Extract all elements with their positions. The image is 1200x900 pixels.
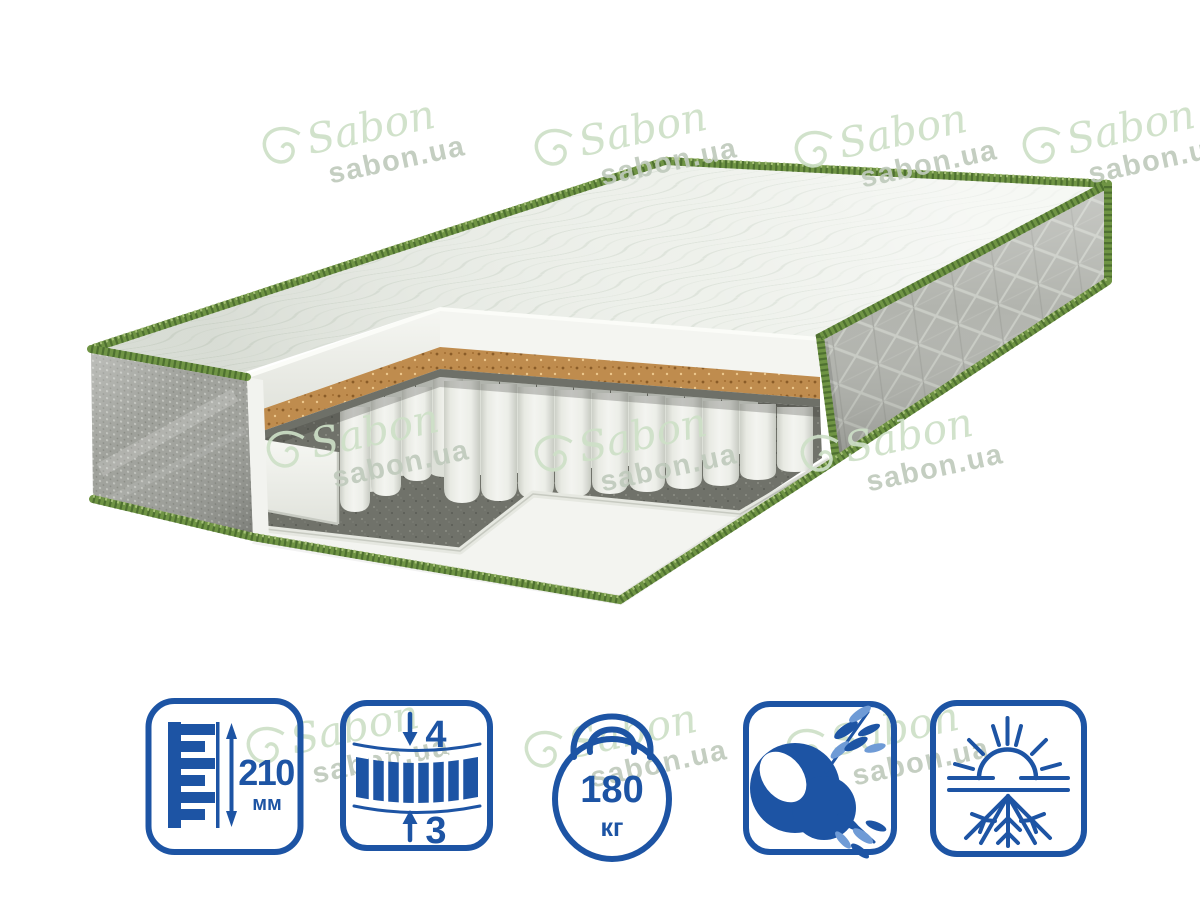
mattress-cutaway: [91, 158, 1108, 600]
zones-bottom-value: 3: [425, 810, 446, 852]
height-value: 210: [238, 752, 294, 793]
mattress-product-illustration: Sabon sabon.ua Sabon sabon.ua Sabon sabo…: [0, 0, 1200, 900]
max-load-value: 180: [580, 769, 643, 811]
height-ruler-icon: 210 мм: [149, 701, 301, 852]
product-image: Sabon sabon.ua Sabon sabon.ua Sabon sabo…: [0, 0, 1200, 900]
watermark-logo-swash: [533, 127, 576, 167]
height-unit: мм: [252, 793, 282, 815]
watermark-logo-swash: [1021, 125, 1064, 165]
max-load-unit: кг: [601, 814, 624, 842]
watermark: Sabon sabon.ua: [260, 85, 468, 202]
watermark-logo-swash: [261, 125, 304, 165]
watermark-logo-swash: [523, 729, 566, 769]
watermark-logo-swash: [793, 129, 836, 169]
snowflake-half: [966, 796, 1050, 846]
